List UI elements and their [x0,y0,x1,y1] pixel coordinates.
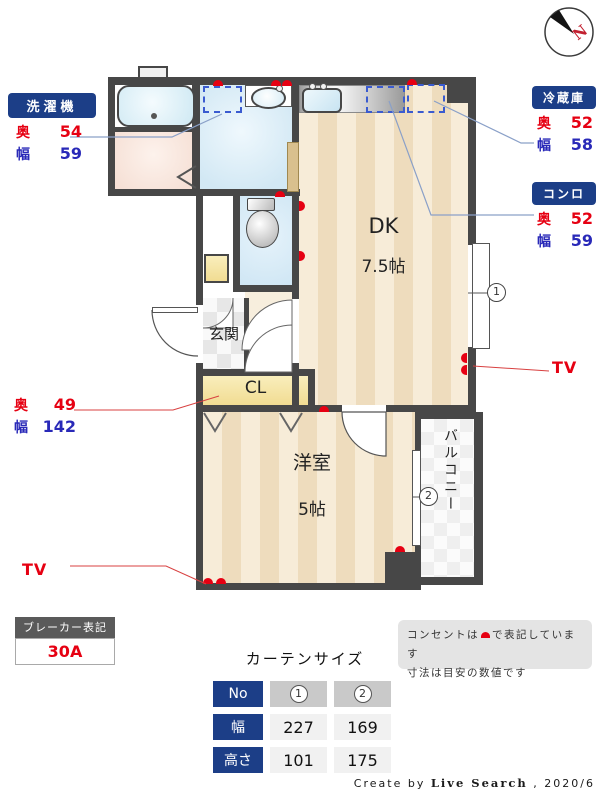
structural-pillar [447,77,476,103]
outlet-marker [282,80,292,86]
window-1-marker: 1 [487,283,506,302]
wall [468,347,476,412]
toilet-bowl [246,210,279,248]
wall [196,369,315,376]
outlet-marker [319,406,329,412]
curtain-row-height-header: 高さ [213,747,263,773]
wall [421,577,483,585]
washroom-floor [115,132,192,189]
refrigerator-area [407,84,445,113]
wall [233,189,240,292]
room-dk-size: 7.5帖 [299,252,468,277]
wall [108,77,115,195]
curtain-height-2: 175 [334,747,391,773]
pipe-space [138,66,168,79]
breaker-value: 30A [15,638,115,665]
curtain-width-1: 227 [270,714,327,740]
closet-depth-value: 49 [54,395,76,414]
note-line1-pre: コンセントは [407,629,479,641]
outlet-marker [407,79,417,85]
wall-notch [385,552,421,583]
curtain-row-width-header: 幅 [213,714,263,740]
washer-depth-value: 54 [60,122,82,141]
room-balcony-name: バルコニー [440,428,460,578]
wall [108,189,300,196]
room-closet-name: CL [203,378,308,398]
curtain-height-1: 101 [270,747,327,773]
fridge-width-key: 幅 [537,135,551,155]
outlet-marker [216,578,226,584]
curtain-no-2: 2 [334,681,391,707]
fridge-depth-key: 奥 [537,113,551,133]
tv-label-right: TV [552,358,577,377]
outlet-marker [395,546,405,552]
wall [386,405,476,412]
washer-width-value: 59 [60,144,82,163]
outlet-marker [203,578,213,584]
outlet-marker [275,191,285,197]
wall [115,127,192,132]
stove-depth-key: 奥 [537,209,551,229]
wall [474,412,483,585]
stove-label-title: コンロ [532,182,596,205]
wall [233,285,299,292]
tv-label-left: TV [22,560,47,579]
bathtub [117,85,195,127]
closet-width-value: 142 [43,417,76,436]
faucet-icon [309,83,316,90]
outlet-marker [461,365,467,375]
wall [196,583,421,590]
curtain-no-1: 1 [270,681,327,707]
washing-machine-area [203,86,242,113]
faucet-icon [320,83,327,90]
leader-tv-left [70,566,206,584]
dk-floor [299,85,468,405]
stove-depth-value: 52 [571,209,593,228]
leader-tv-right [473,366,549,371]
hall-floor [245,292,292,369]
entrance-door-leaf [152,307,198,313]
credit-brand: Live Search [431,776,528,790]
curtain-width-2: 169 [334,714,391,740]
closet-depth-key: 奥 [14,395,28,415]
outlet-marker [213,80,223,86]
faucet-icon [276,85,283,92]
legend-note: コンセントはで表記しています 寸法は目安の数値です [398,620,592,669]
window-2-marker: 2 [419,487,438,506]
wall [196,363,203,590]
wall [415,412,483,419]
curtain-title: カーテンサイズ [195,648,415,669]
washer-depth-key: 奥 [16,122,30,142]
fridge-label-title: 冷蔵庫 [532,86,596,109]
washer-width-key: 幅 [16,144,30,164]
floorplan-page: DK 7.5帖 洋室 5帖 玄関 CL バルコニー 1 2 洗濯機 奥 54 幅… [0,0,600,800]
outlet-marker [271,80,281,86]
credit-line: Create by Live Search , 2020/6 [340,772,595,791]
compass: N [541,4,597,60]
breaker-title: ブレーカー表記 [15,617,115,638]
stove-width-key: 幅 [537,231,551,251]
closet-width-key: 幅 [14,417,28,437]
wall [415,412,421,452]
wall [292,85,299,142]
entrance-door-arc [152,310,198,356]
room-living-name: 洋室 [203,448,421,475]
stove-label: コンロ 奥 52 幅 59 [532,182,596,251]
shoe-box [204,254,229,283]
wall [292,192,299,299]
credit-suffix: , 2020/6 [528,777,595,790]
closet-label: 奥 49 幅 142 [14,395,78,437]
credit-prefix: Create by [354,777,431,790]
curtain-row-no-header: No [213,681,263,707]
sliding-door [287,142,299,192]
fridge-depth-value: 52 [571,113,593,132]
wall [196,189,203,305]
fridge-label: 冷蔵庫 奥 52 幅 58 [532,86,596,155]
note-line2: 寸法は目安の数値です [407,667,527,679]
outlet-icon [481,632,490,638]
stove-area [366,86,405,113]
fridge-width-value: 58 [571,135,593,154]
stove-width-value: 59 [571,231,593,250]
kitchen-sink [302,88,342,113]
washer-label-title: 洗濯機 [8,93,96,118]
room-entrance-name: 玄関 [203,323,245,344]
washer-label: 洗濯機 奥 54 幅 59 [8,93,96,164]
room-dk-name: DK [299,214,468,238]
room-living-size: 5帖 [203,495,421,520]
bathtub-drain-icon [151,113,157,119]
curtain-table: No 1 2 幅 227 169 高さ 101 175 [213,681,391,773]
outlet-marker [461,353,467,363]
